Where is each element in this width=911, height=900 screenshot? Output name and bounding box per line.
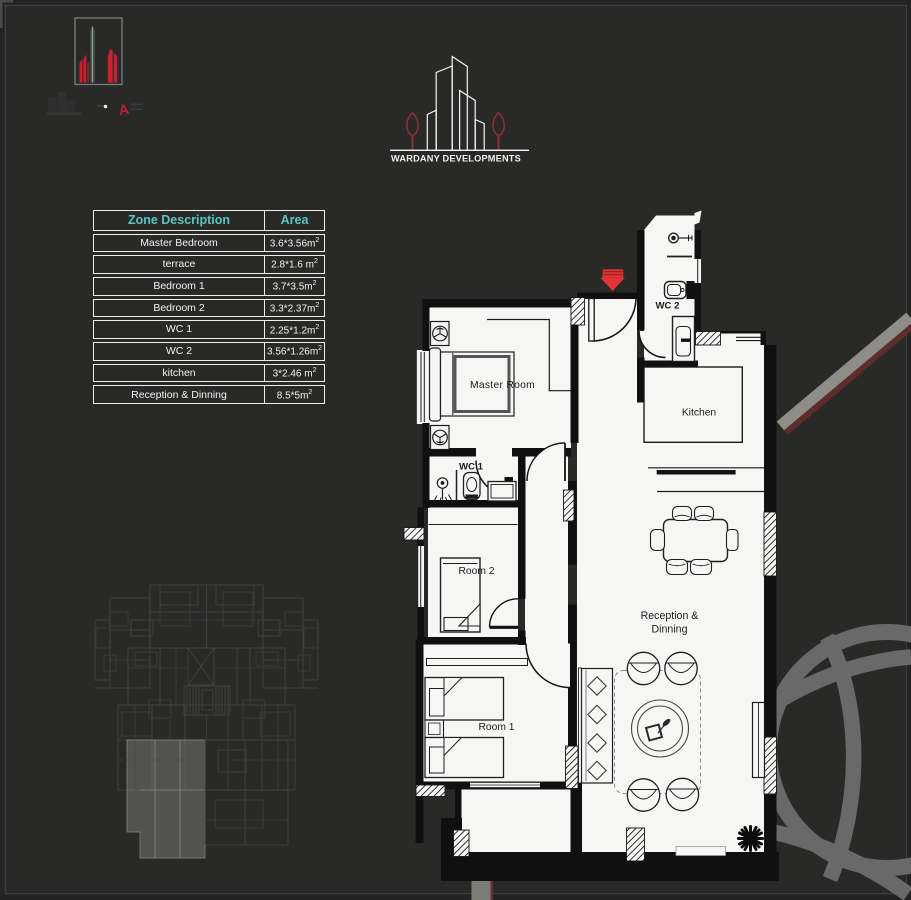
- svg-text:WC 1: WC 1: [459, 462, 484, 473]
- svg-text:Dinning: Dinning: [652, 624, 688, 636]
- svg-text:Room 1: Room 1: [478, 722, 514, 733]
- svg-text:WC 2: WC 2: [656, 301, 680, 312]
- svg-text:Master Room: Master Room: [470, 380, 535, 391]
- svg-text:WARDANY DEVELOPMENTS: WARDANY DEVELOPMENTS: [391, 154, 521, 164]
- svg-text:A: A: [118, 102, 131, 119]
- svg-text:Reception &: Reception &: [641, 610, 699, 622]
- svg-text:Kitchen: Kitchen: [682, 408, 717, 419]
- svg-text:Room 2: Room 2: [458, 566, 494, 577]
